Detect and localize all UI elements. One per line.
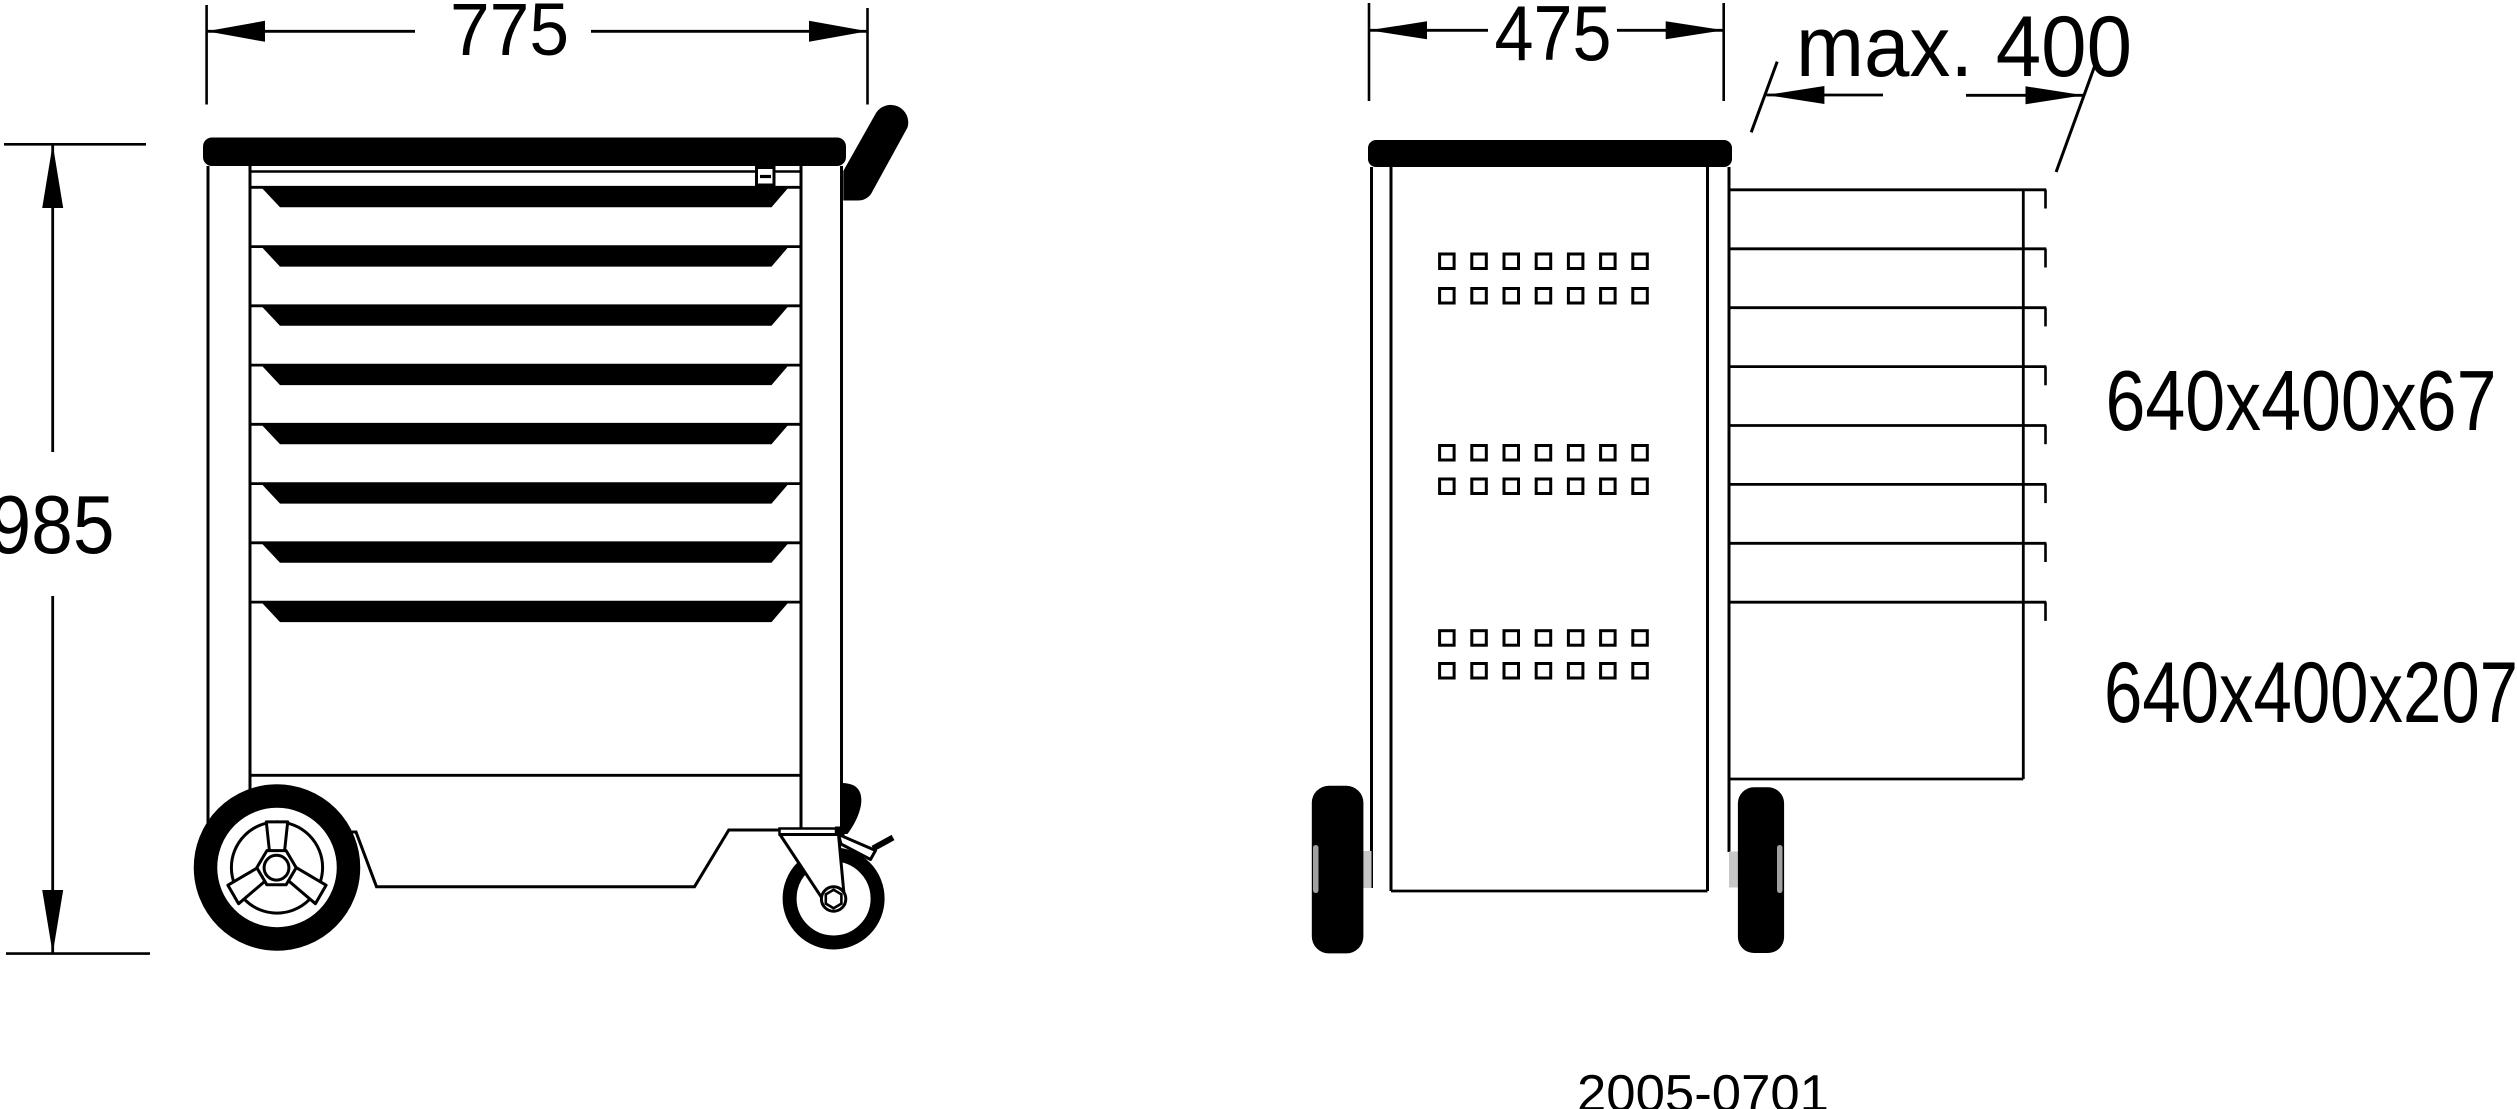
svg-text:2005-0701: 2005-0701 (1577, 1065, 1829, 1109)
svg-text:max. 400: max. 400 (1796, 0, 2132, 95)
svg-text:775: 775 (450, 0, 569, 71)
svg-text:640x400x67: 640x400x67 (2106, 354, 2497, 449)
svg-text:475: 475 (1495, 0, 1612, 77)
svg-text:985: 985 (0, 478, 115, 571)
svg-text:640x400x207: 640x400x207 (2104, 645, 2517, 741)
